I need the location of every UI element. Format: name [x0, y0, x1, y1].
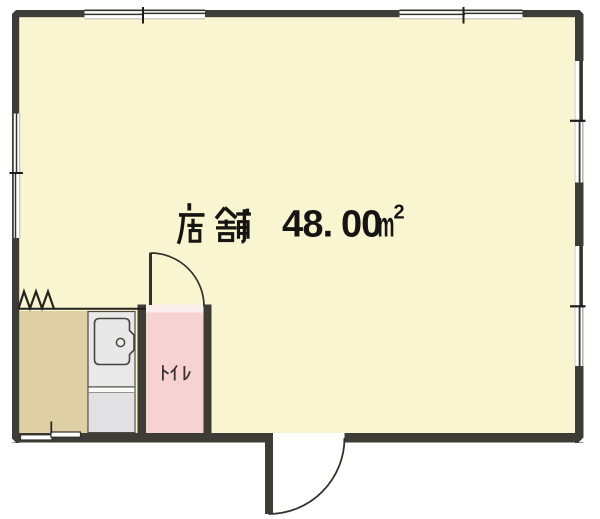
svg-text:2: 2	[394, 202, 405, 224]
svg-text:m: m	[378, 206, 395, 245]
svg-text:00: 00	[341, 204, 381, 246]
svg-text:48.: 48.	[282, 204, 332, 246]
